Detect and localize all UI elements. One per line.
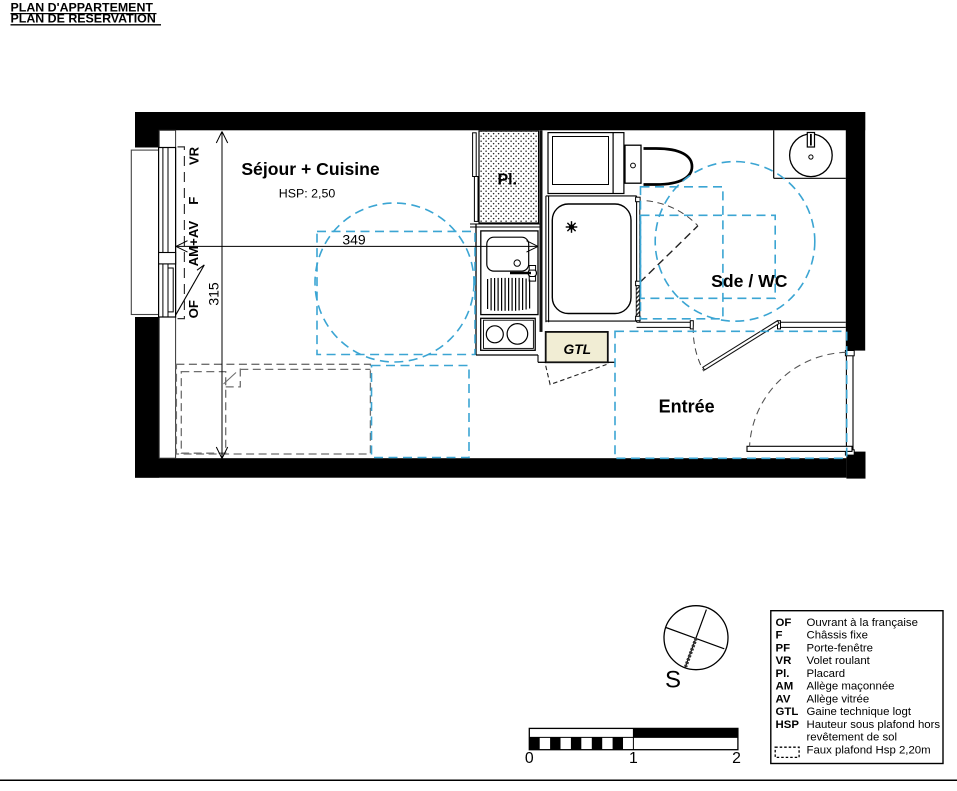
svg-text:Séjour + Cuisine: Séjour + Cuisine xyxy=(241,159,380,179)
svg-text:Faux plafond Hsp 2,20m: Faux plafond Hsp 2,20m xyxy=(807,745,931,757)
svg-text:Châssis fixe: Châssis fixe xyxy=(807,630,868,642)
svg-text:Sde / WC: Sde / WC xyxy=(711,271,788,291)
svg-text:GTL: GTL xyxy=(564,342,592,357)
svg-text:PF: PF xyxy=(776,642,791,654)
svg-text:AM: AM xyxy=(776,681,794,693)
svg-text:Entrée: Entrée xyxy=(659,396,715,416)
svg-text:VR: VR xyxy=(186,146,201,165)
svg-text:Pl.: Pl. xyxy=(498,172,518,189)
svg-text:S: S xyxy=(665,666,681,693)
svg-text:HSP: HSP xyxy=(776,719,800,731)
svg-text:Allège maçonnée: Allège maçonnée xyxy=(807,681,895,693)
svg-text:Gaine technique logt: Gaine technique logt xyxy=(807,706,912,718)
svg-text:F: F xyxy=(776,630,783,642)
svg-text:Pl.: Pl. xyxy=(776,668,790,680)
svg-text:OF: OF xyxy=(186,300,201,318)
svg-text:AM+AV: AM+AV xyxy=(186,221,201,267)
svg-text:349: 349 xyxy=(342,231,366,247)
svg-text:OF: OF xyxy=(776,617,792,629)
svg-text:F: F xyxy=(186,197,201,205)
svg-text:Porte-fenêtre: Porte-fenêtre xyxy=(807,642,873,654)
svg-text:315: 315 xyxy=(205,282,221,306)
svg-text:Ouvrant à la française: Ouvrant à la française xyxy=(807,617,918,629)
svg-text:revêtement de sol: revêtement de sol xyxy=(807,732,898,744)
svg-text:GTL: GTL xyxy=(776,706,799,718)
svg-text:VR: VR xyxy=(776,655,792,667)
svg-text:0: 0 xyxy=(525,750,534,767)
svg-text:2: 2 xyxy=(732,750,741,767)
svg-text:Allège vitrée: Allège vitrée xyxy=(807,693,870,705)
svg-text:AV: AV xyxy=(776,693,791,705)
svg-text:1: 1 xyxy=(629,750,638,767)
svg-text:Hauteur sous plafond hors: Hauteur sous plafond hors xyxy=(807,719,941,731)
svg-text:Placard: Placard xyxy=(807,668,846,680)
svg-text:Volet roulant: Volet roulant xyxy=(807,655,871,667)
svg-text:PLAN DE RESERVATION: PLAN DE RESERVATION xyxy=(11,12,156,26)
svg-text:HSP: 2,50: HSP: 2,50 xyxy=(279,187,336,201)
